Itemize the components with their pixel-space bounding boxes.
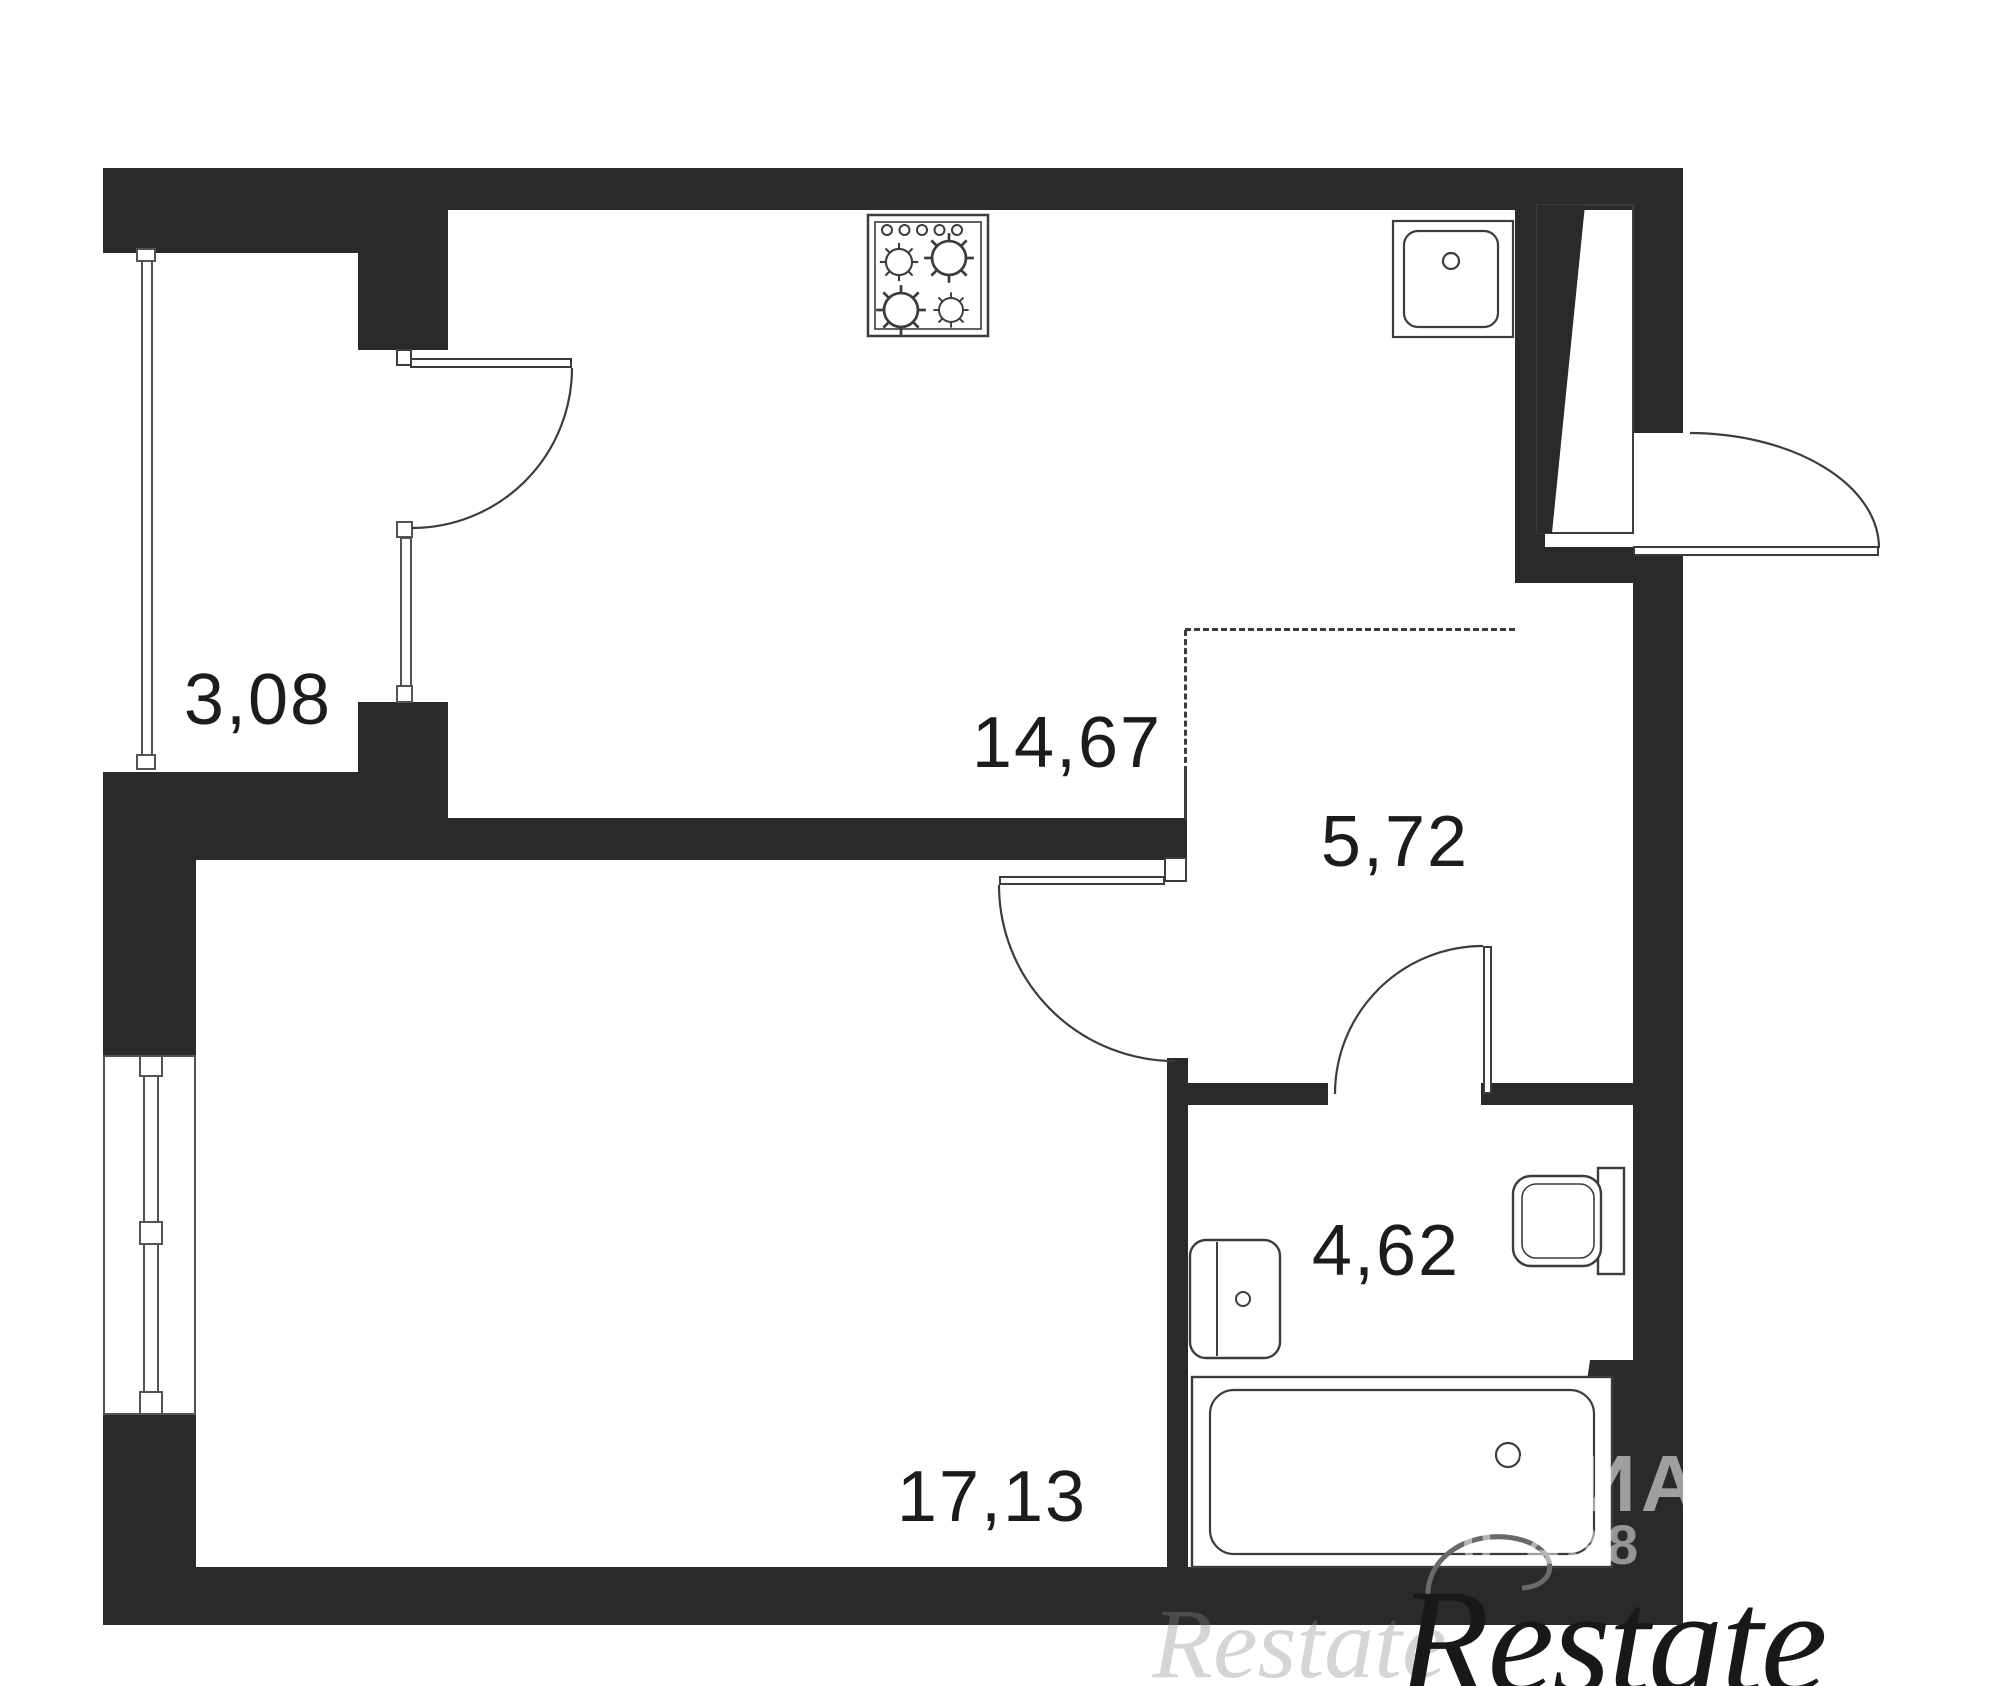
dashed-zone-line-vertical [1184,630,1187,772]
balcony-partition-window [400,537,412,687]
wall-kitchen-duct [1515,210,1545,583]
dashed-zone-line-horizontal [1185,628,1515,631]
room-window-cap-bottom [139,1391,163,1415]
area-label-living-room: 17,13 [897,1456,1087,1538]
floor-plan: 3,08 14,67 5,72 4,62 17,13 АЦИАН 0 438 R… [0,0,2000,1686]
balcony-partition-cap-bottom [396,685,413,703]
wall-top-left [103,168,358,253]
restate-watermark: Restate [1398,1556,1826,1686]
hallway-edge-line [1184,770,1187,820]
vent-shaft-top-icon [1537,205,1633,533]
balcony-door-leaf [410,358,572,368]
room-door-leaf [999,876,1165,885]
area-label-hallway: 5,72 [1321,801,1469,883]
stove-icon [868,215,988,336]
area-label-bathroom: 4,62 [1312,1210,1460,1292]
wall-balcony-bottom [103,772,358,860]
bathroom-sink-icon [1190,1240,1280,1358]
room-window-cap-middle [139,1221,163,1245]
wall-right-upper [1633,210,1683,433]
balcony-window [141,256,153,768]
room-window-cap-top [139,1055,163,1077]
wall-pillar-bottom [358,702,448,860]
wall-kitchen-room-divider [440,818,1187,860]
balcony-window-cap-bottom [136,754,156,770]
wall-room-bathroom [1167,1058,1188,1567]
area-label-kitchen: 14,67 [972,702,1162,784]
entrance-door-leaf [1633,546,1879,556]
bathroom-door-leaf [1483,946,1492,1094]
kitchen-sink-icon [1393,221,1513,337]
wall-pillar-top [358,168,448,350]
balcony-partition-cap-mid [396,521,413,538]
wall-top-main [358,168,1683,210]
room-door-jamb [1164,857,1187,882]
wall-niche-bottom [1515,547,1633,583]
wall-left-upper [103,860,196,1055]
room-door-arc [999,885,1175,1061]
entrance-door-arc [1690,433,1879,548]
bathroom-door-arc [1335,946,1483,1094]
wall-bathroom-top-right [1481,1083,1633,1105]
area-label-balcony: 3,08 [184,659,332,741]
toilet-icon [1513,1168,1624,1274]
wall-bathroom-top-left [1188,1083,1328,1105]
balcony-window-cap-top [136,248,156,262]
balcony-door-arc [412,368,572,528]
